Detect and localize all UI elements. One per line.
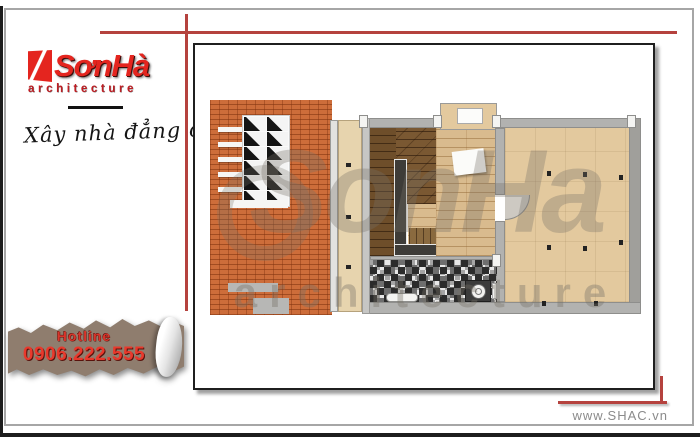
wall-column xyxy=(492,254,501,267)
bedroom-wood-floor xyxy=(436,128,495,256)
website-url: www.SHAC.vn xyxy=(560,408,668,423)
brand-logo: SơnHà architecture xyxy=(28,50,188,109)
door-mark xyxy=(547,171,551,176)
terrace-block xyxy=(253,298,289,314)
door-mark xyxy=(547,245,551,250)
bed xyxy=(452,148,487,176)
door-mark xyxy=(583,172,587,177)
louver-cell xyxy=(244,117,266,131)
red-accent-line-right xyxy=(660,376,663,403)
wall-column xyxy=(627,115,636,128)
louver-cell xyxy=(244,161,266,175)
shower-fixture xyxy=(492,283,497,299)
bottom-edge-line xyxy=(0,433,700,437)
shower-drain-icon xyxy=(471,284,486,299)
louver-panel xyxy=(242,115,290,207)
louver-cell xyxy=(267,161,289,175)
hotline-number: 0906.222.555 xyxy=(23,344,145,366)
bathtub xyxy=(386,293,418,302)
wall-left xyxy=(362,118,370,314)
door-mark xyxy=(594,301,598,306)
door-mark xyxy=(542,301,546,306)
wall-bottom xyxy=(362,302,641,314)
louver-cell xyxy=(244,132,266,146)
logo-subtitle: architecture xyxy=(28,83,188,95)
logo-divider xyxy=(68,106,123,109)
louver-cell xyxy=(244,147,266,161)
interior-wall xyxy=(495,128,505,195)
logo-flame-icon xyxy=(28,50,52,82)
wall-top xyxy=(362,118,641,128)
door-mark xyxy=(619,175,623,180)
window-alcove xyxy=(440,103,497,130)
wall-right xyxy=(629,118,641,314)
wall-column xyxy=(492,115,501,128)
hotline-label: Hotline xyxy=(57,328,111,344)
large-room-floor xyxy=(505,128,629,302)
left-edge-line xyxy=(0,6,3,437)
louver-cell xyxy=(267,117,289,131)
floor-plan-page: SonHa architecture xyxy=(193,43,655,390)
door-mark xyxy=(346,215,351,219)
wall-column xyxy=(433,115,442,128)
terrace-planter xyxy=(228,283,278,292)
door-mark xyxy=(619,240,623,245)
louver-cell xyxy=(267,132,289,146)
shower-tray xyxy=(465,280,491,302)
marketing-image: SơnHà architecture Xây nhà đẳng cấp Hotl… xyxy=(0,0,700,437)
terrace-ledge xyxy=(230,200,288,208)
door-mark xyxy=(346,265,351,269)
logo-text: SơnHà xyxy=(54,50,149,82)
side-wall xyxy=(330,120,338,312)
louver-cell xyxy=(267,147,289,161)
hotline-banner: Hotline 0906.222.555 xyxy=(8,312,184,382)
red-accent-line-bottom xyxy=(558,401,667,404)
wall-column xyxy=(359,115,368,128)
drain-ring-icon xyxy=(475,288,482,295)
stair-flight xyxy=(370,128,396,256)
stair-core-wall xyxy=(395,160,406,256)
louver-cell xyxy=(267,176,289,190)
window xyxy=(457,108,483,124)
louver-cell xyxy=(244,176,266,190)
door-mark xyxy=(346,163,351,167)
door-mark xyxy=(583,246,587,251)
